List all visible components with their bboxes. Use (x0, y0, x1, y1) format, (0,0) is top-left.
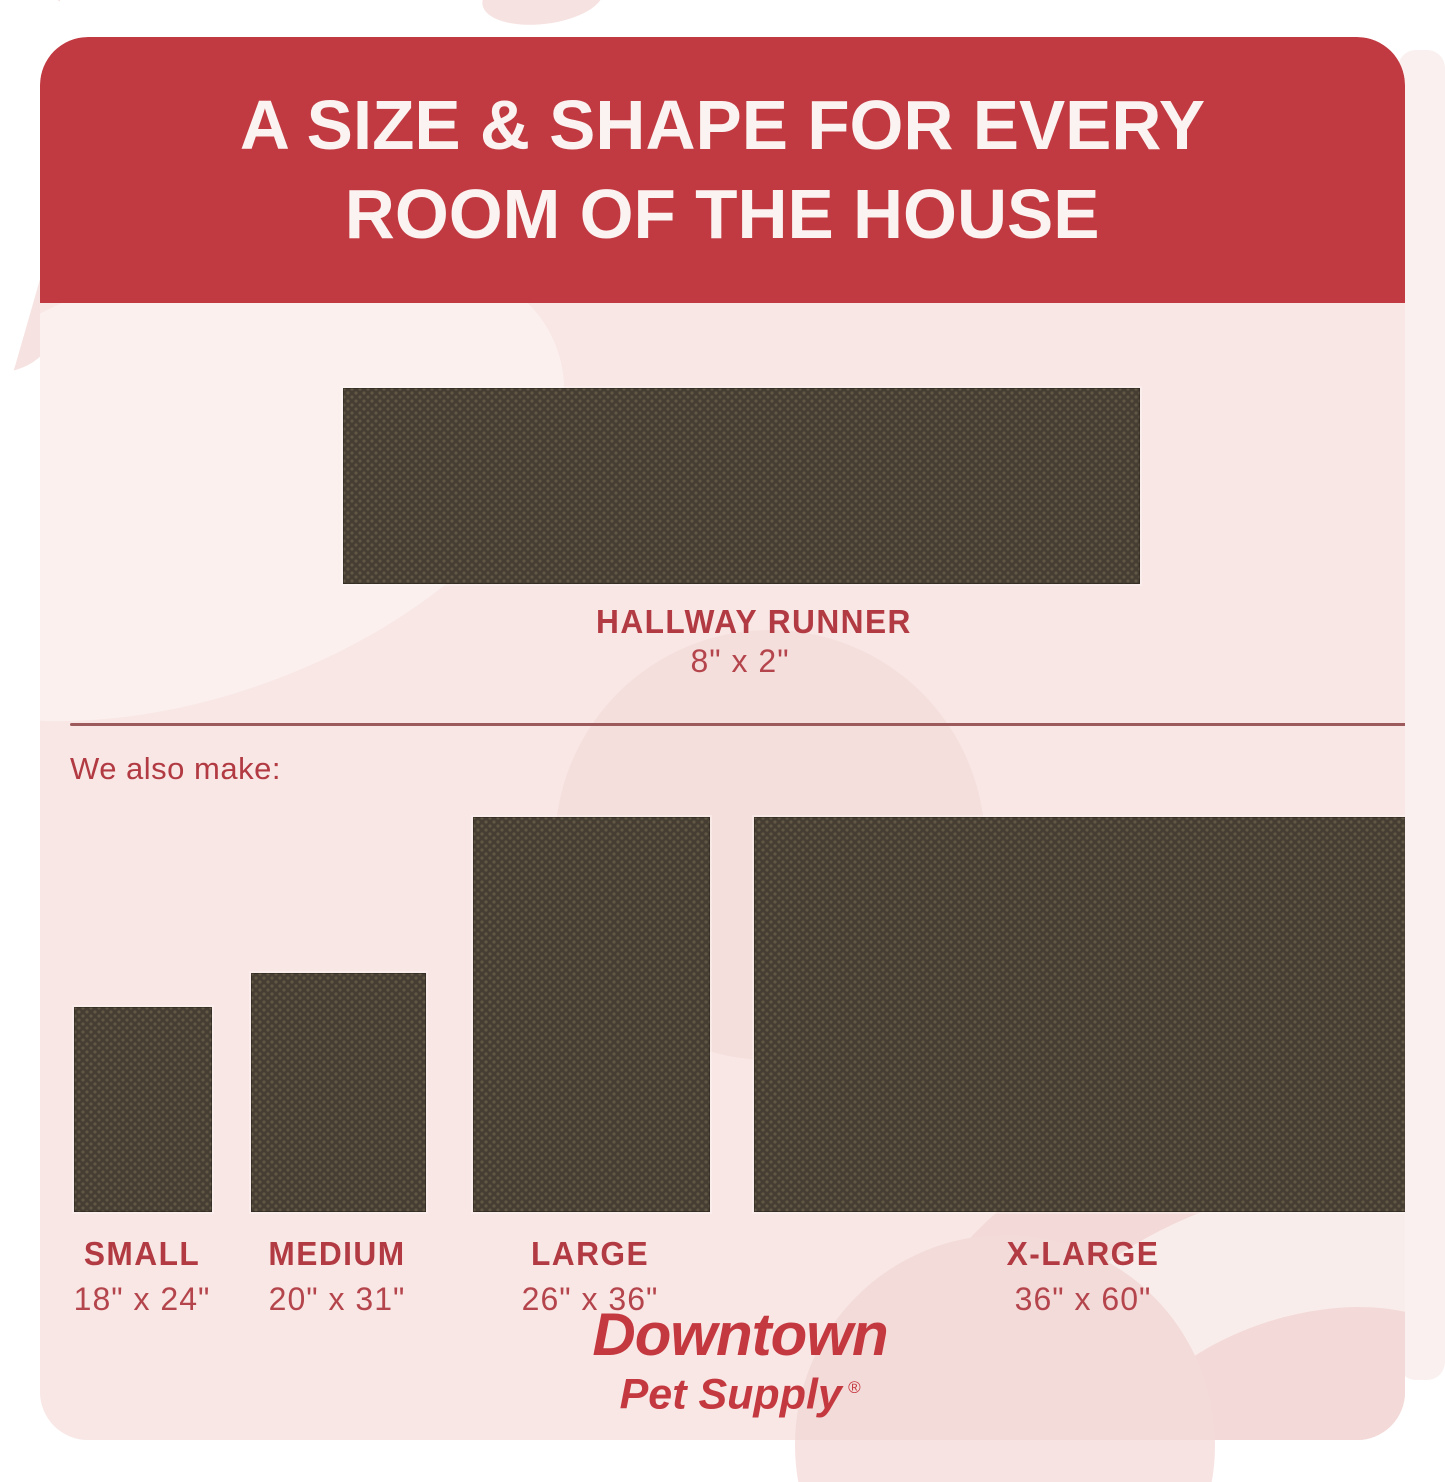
header-banner: A SIZE & SHAPE FOR EVERY ROOM OF THE HOU… (40, 37, 1405, 303)
page-title-line1: A SIZE & SHAPE FOR EVERY (240, 81, 1205, 170)
rug-swatch-small (74, 1007, 212, 1212)
rug-swatch-medium (251, 973, 426, 1212)
brand-logo: Downtown Pet Supply® (440, 1305, 1040, 1417)
rug-swatch-hallway-runner (343, 388, 1140, 584)
hallway-runner-dimensions: 8" x 2" (590, 643, 890, 680)
content-card: A SIZE & SHAPE FOR EVERY ROOM OF THE HOU… (40, 37, 1405, 1440)
size-label-xlarge: X-LARGE (939, 1235, 1227, 1273)
hallway-runner-label: HALLWAY RUNNER (596, 603, 884, 641)
infographic-canvas: A SIZE & SHAPE FOR EVERY ROOM OF THE HOU… (0, 0, 1445, 1482)
registered-trademark-symbol: ® (848, 1378, 861, 1397)
brand-tagline-text: Pet Supply (620, 1370, 842, 1418)
page-title-line2: ROOM OF THE HOUSE (345, 170, 1100, 259)
section-divider (70, 723, 1405, 726)
top-edge-pink-blob (479, 0, 607, 31)
right-margin-pale-strip (1398, 50, 1445, 1380)
rug-swatch-large (473, 817, 710, 1212)
rug-swatch-xlarge (754, 817, 1405, 1212)
brand-tagline: Pet Supply® (440, 1365, 1040, 1417)
brand-name: Downtown (440, 1305, 1040, 1365)
also-make-label: We also make: (70, 751, 281, 787)
size-label-medium: MEDIUM (193, 1235, 481, 1273)
size-label-large: LARGE (446, 1235, 734, 1273)
